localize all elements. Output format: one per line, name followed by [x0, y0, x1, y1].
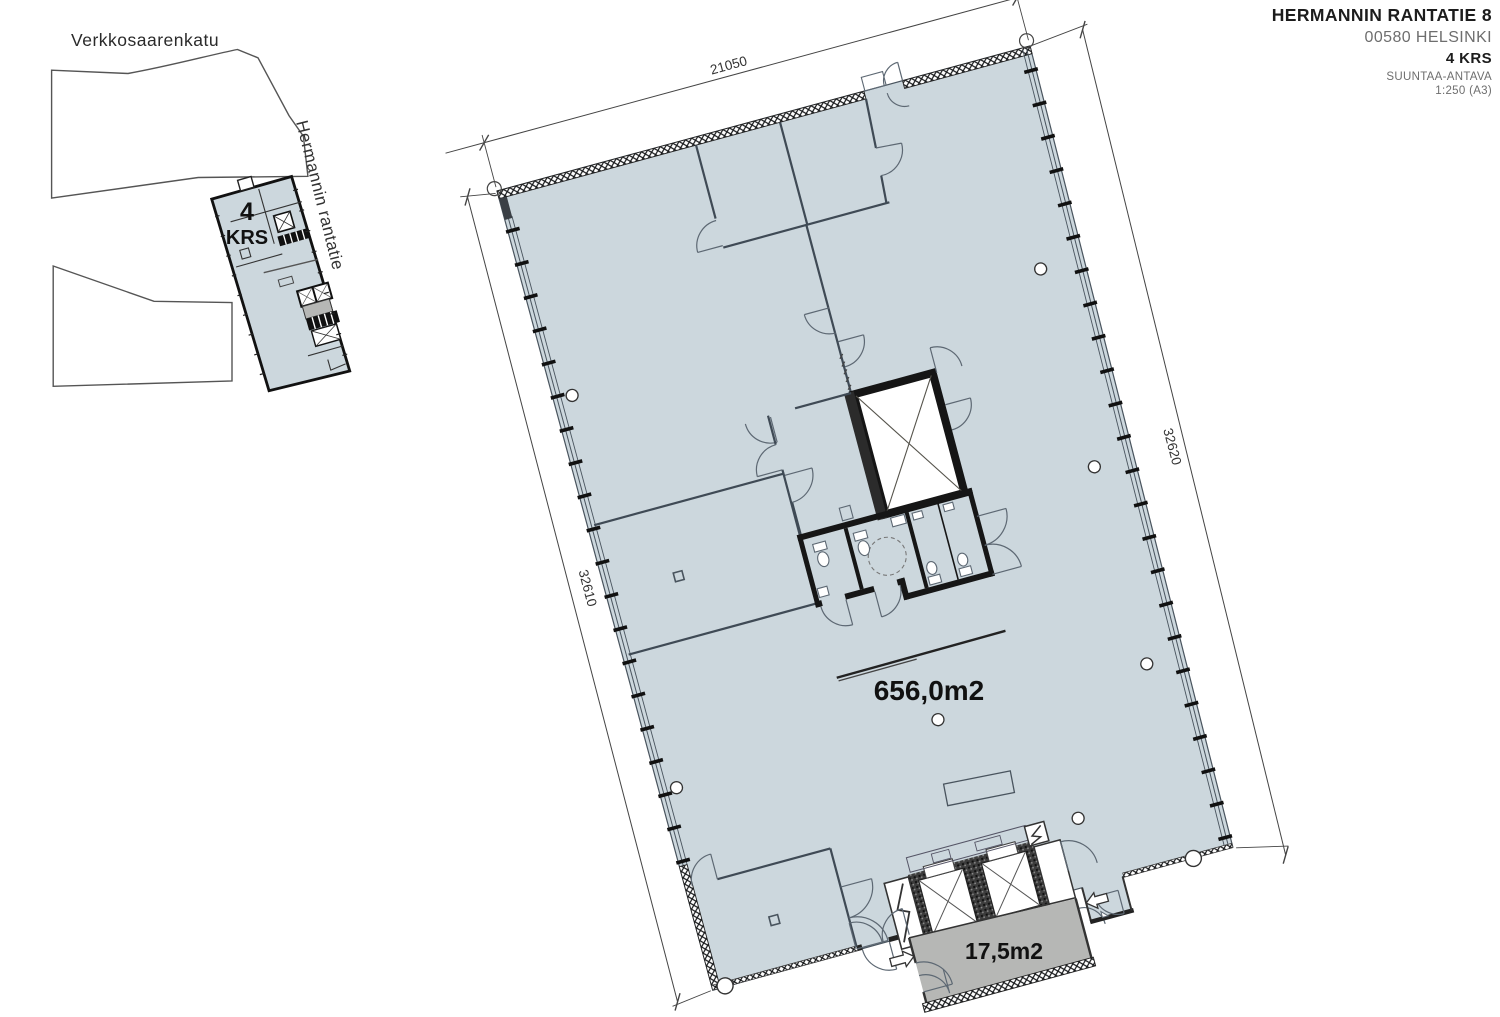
svg-text:4 KRS: 4 KRS [1446, 50, 1492, 67]
svg-text:32610: 32610 [576, 568, 600, 608]
svg-text:4: 4 [240, 198, 254, 226]
svg-text:1:250 (A3): 1:250 (A3) [1435, 85, 1492, 97]
svg-text:00580 HELSINKI: 00580 HELSINKI [1365, 29, 1492, 46]
svg-text:17,5m2: 17,5m2 [965, 938, 1043, 964]
svg-text:KRS: KRS [226, 227, 268, 249]
svg-text:21050: 21050 [709, 53, 749, 77]
svg-text:SUUNTAA-ANTAVA: SUUNTAA-ANTAVA [1386, 71, 1492, 83]
svg-text:656,0m2: 656,0m2 [874, 675, 985, 706]
svg-text:32620: 32620 [1160, 426, 1184, 466]
svg-text:Verkkosaarenkatu: Verkkosaarenkatu [71, 30, 219, 50]
svg-text:HERMANNIN RANTATIE 8: HERMANNIN RANTATIE 8 [1272, 5, 1492, 25]
